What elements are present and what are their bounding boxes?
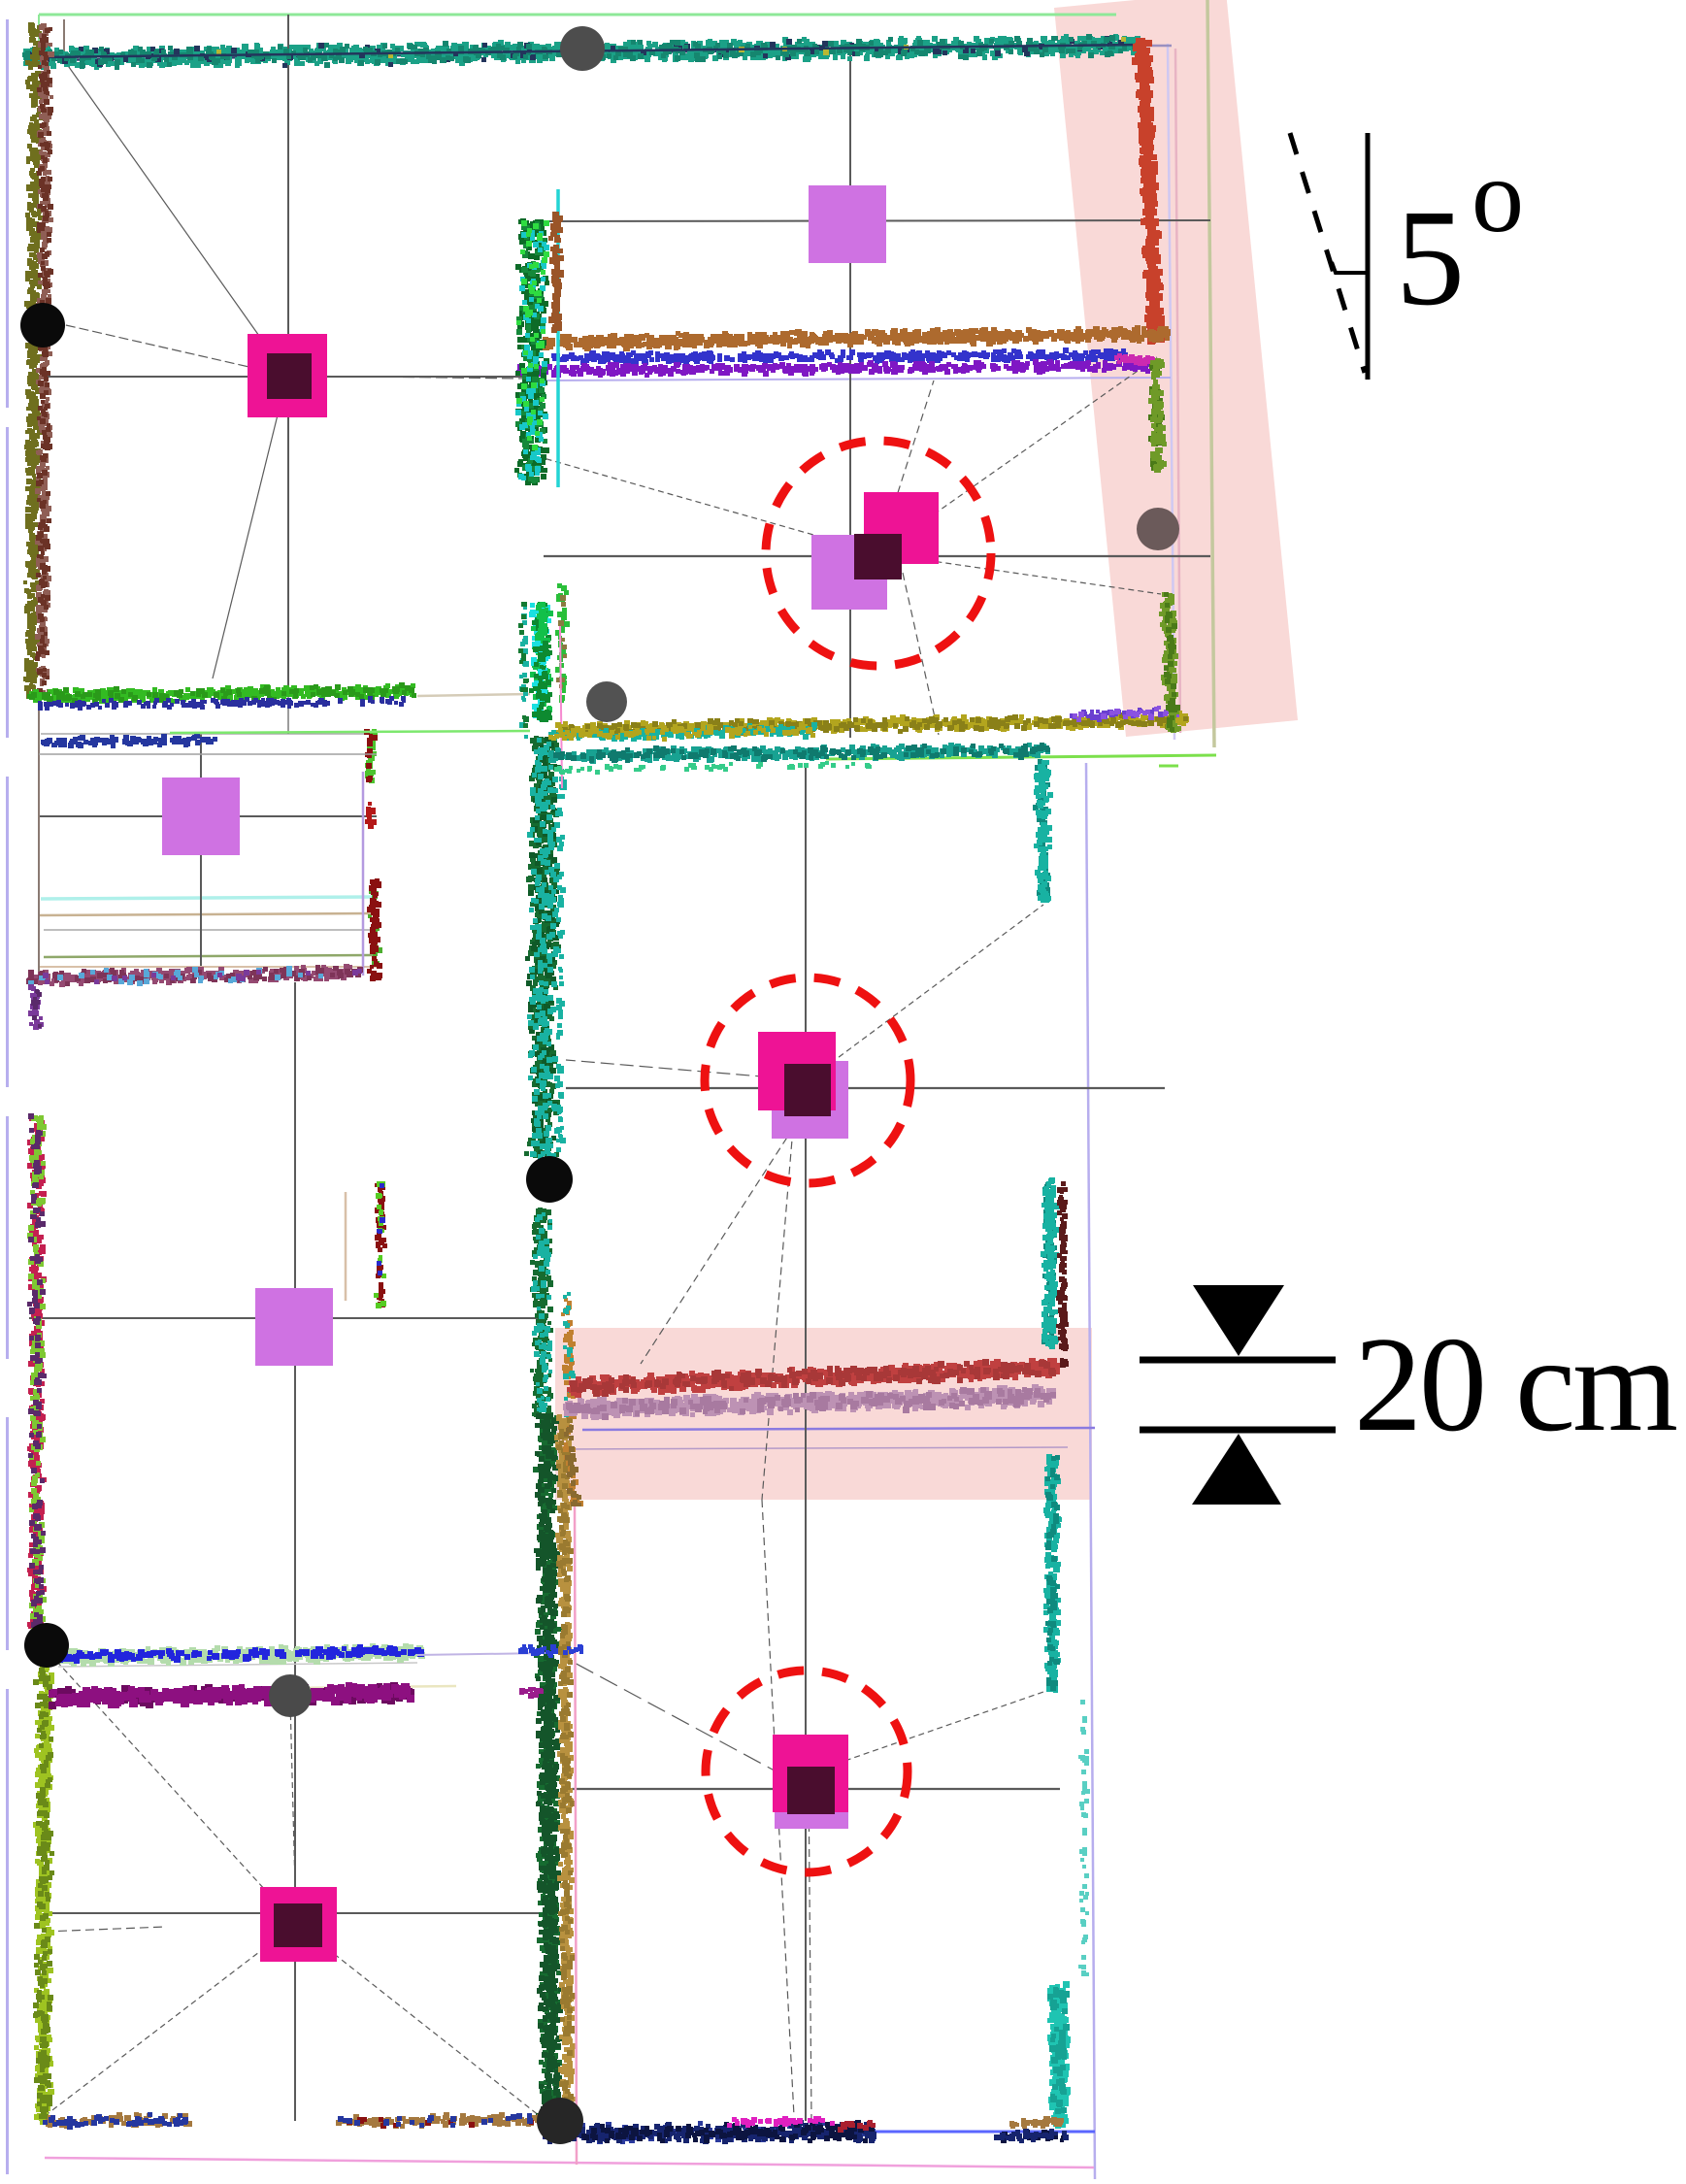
svg-text:20 cm: 20 cm <box>1354 1309 1676 1460</box>
svg-text:o: o <box>1471 139 1524 254</box>
svg-text:5: 5 <box>1396 181 1465 334</box>
